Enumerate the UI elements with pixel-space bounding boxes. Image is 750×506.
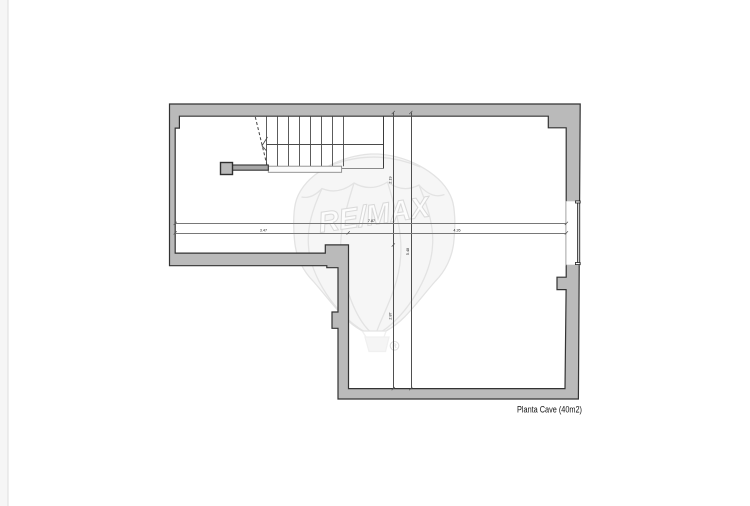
svg-text:2.87: 2.87 — [389, 312, 393, 319]
svg-text:4.26: 4.26 — [453, 229, 460, 233]
svg-text:3.47: 3.47 — [260, 229, 267, 233]
svg-text:7.87: 7.87 — [368, 219, 375, 223]
svg-text:2.19: 2.19 — [389, 176, 393, 183]
svg-text:Planta Cave (40m2): Planta Cave (40m2) — [517, 405, 582, 416]
svg-text:5.48: 5.48 — [406, 248, 410, 255]
